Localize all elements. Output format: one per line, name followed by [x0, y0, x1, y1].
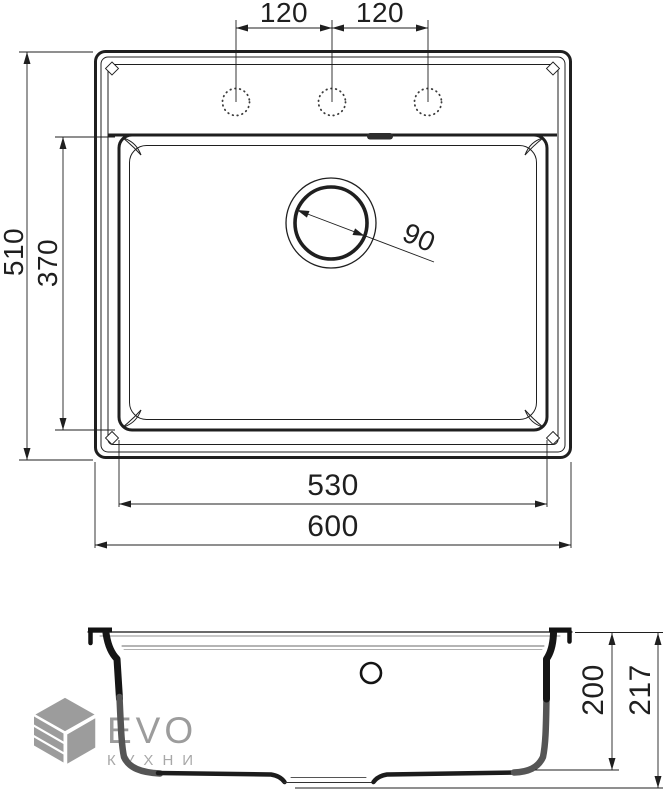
- bowl-wall-left-lower: [120, 697, 161, 774]
- sink-top-view: [96, 52, 571, 458]
- bowl-bottom-right: [374, 773, 517, 783]
- sink-drawing: [0, 0, 664, 800]
- overflow-notch: [367, 133, 393, 140]
- bowl-wall-right-lower: [514, 697, 547, 773]
- bowl-wall-left: [106, 633, 120, 699]
- bowl-bottom-left: [158, 773, 285, 782]
- bowl-wall-right: [547, 633, 554, 699]
- bowl-edge: [119, 135, 547, 430]
- sink-technical-drawing: EVO КУХНИ: [0, 0, 664, 800]
- side-view-dimensions: [295, 633, 663, 789]
- overflow-hole: [361, 663, 381, 683]
- sink-side-view: [88, 630, 572, 783]
